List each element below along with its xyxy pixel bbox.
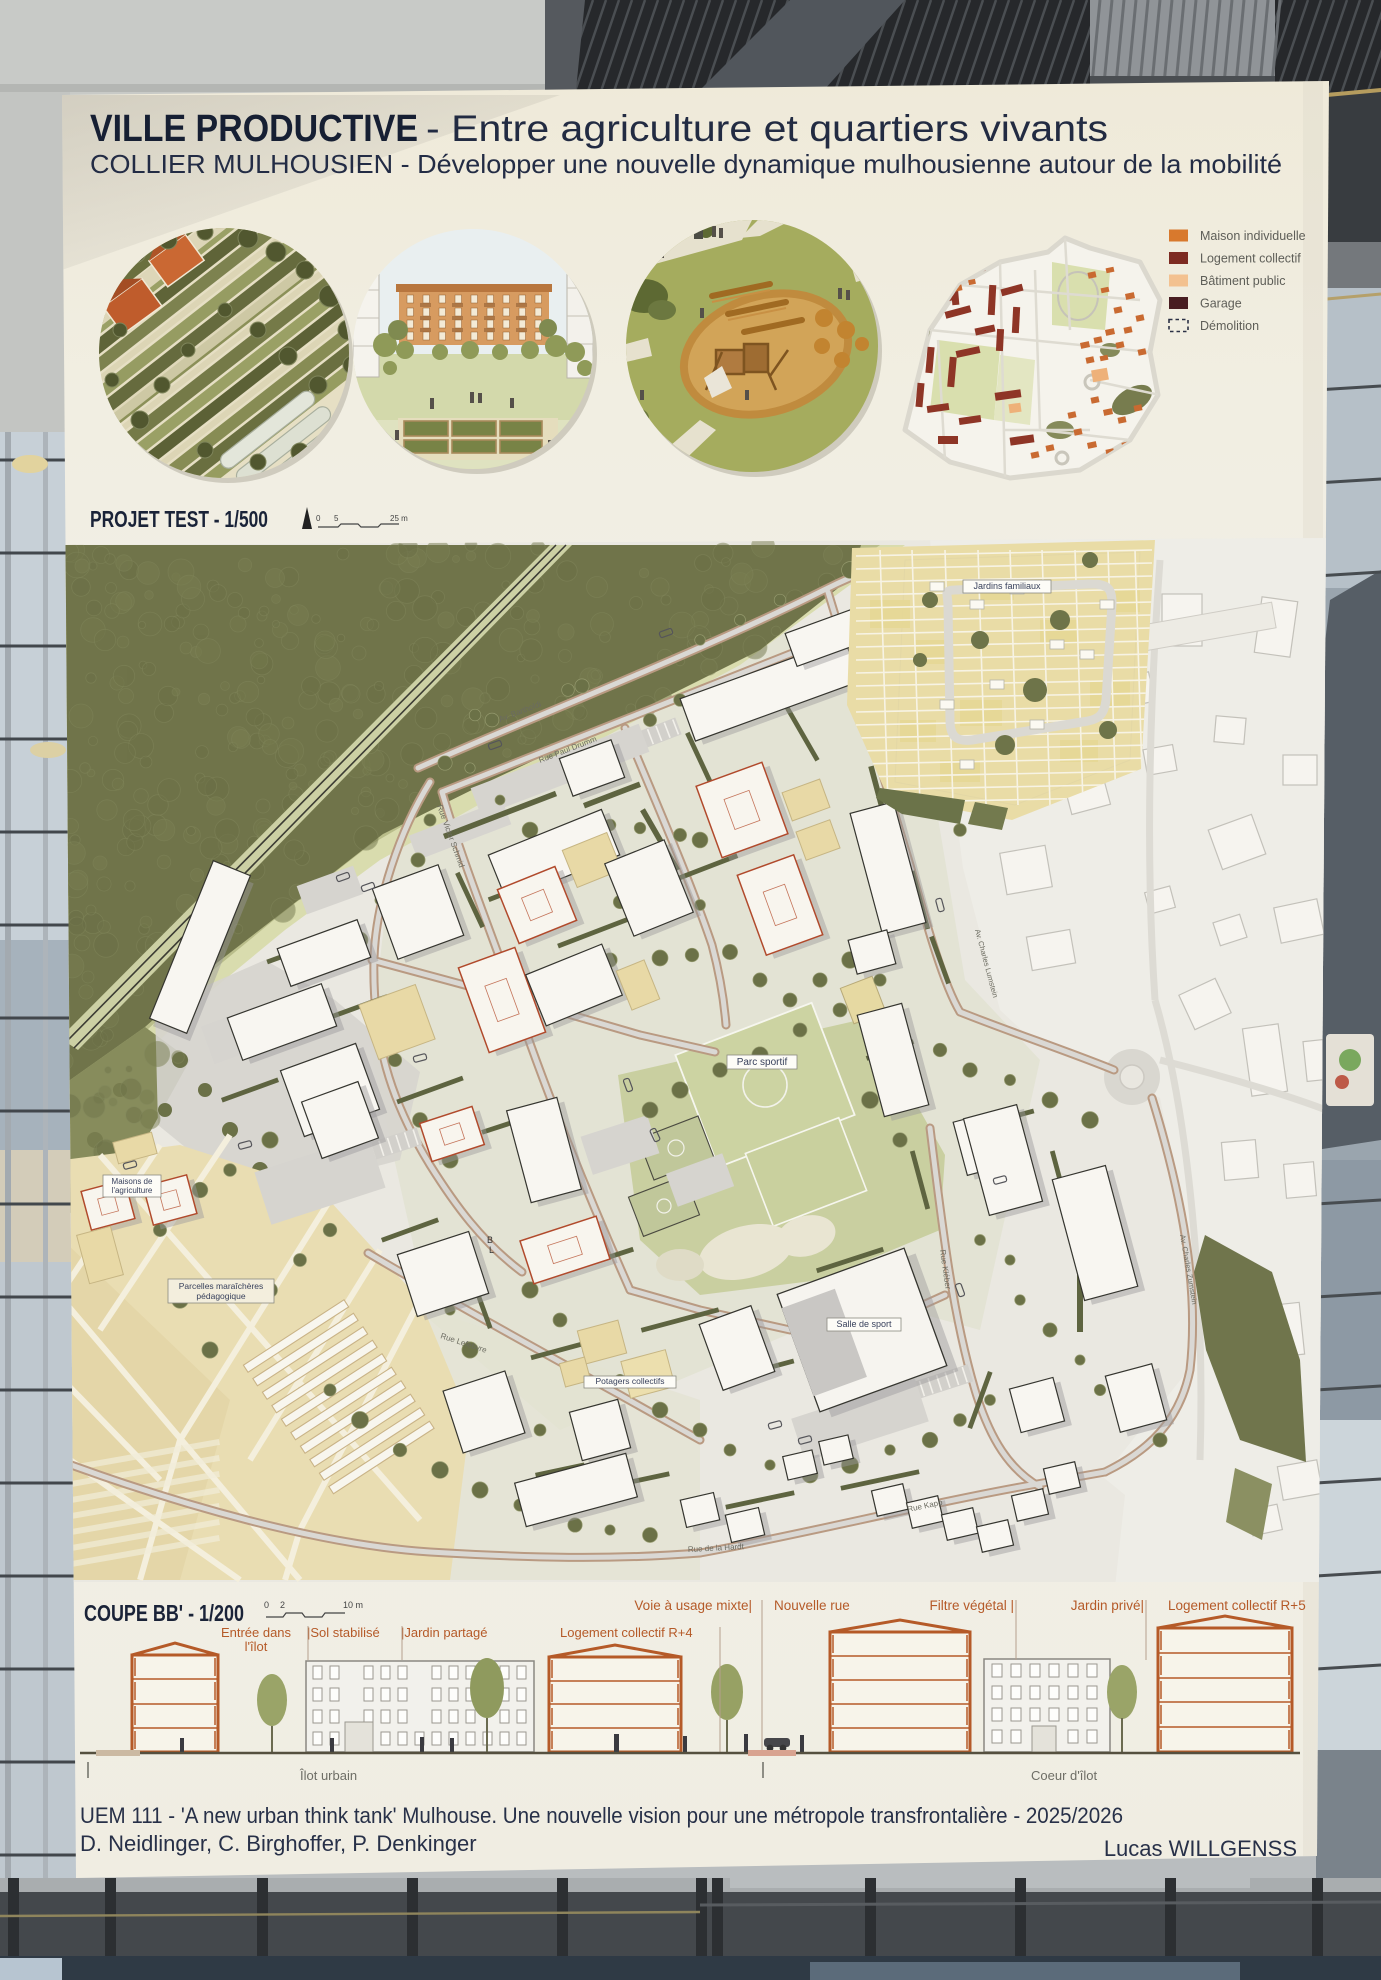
svg-text:D. Neidlinger, C. Birghoffer,: D. Neidlinger, C. Birghoffer, P. Denking…: [80, 1831, 477, 1856]
svg-text:l'îlot: l'îlot: [245, 1639, 268, 1654]
svg-text:Garage: Garage: [1200, 297, 1242, 311]
svg-text:Jardins familiaux: Jardins familiaux: [973, 581, 1041, 591]
svg-text:Parc sportif: Parc sportif: [737, 1057, 788, 1068]
svg-text:Bâtiment public: Bâtiment public: [1200, 274, 1285, 288]
svg-text:COLLIER MULHOUSIEN - Développe: COLLIER MULHOUSIEN - Développer une nouv…: [90, 149, 1282, 179]
svg-text:Jardin privé|: Jardin privé|: [1071, 1598, 1144, 1613]
svg-text:PROJET TEST - 1/500: PROJET TEST - 1/500: [90, 506, 268, 532]
svg-text:Coeur d'îlot: Coeur d'îlot: [1031, 1768, 1097, 1783]
svg-text:Entrée dans: Entrée dans: [221, 1625, 292, 1640]
svg-text:L: L: [489, 1245, 494, 1255]
svg-text:pédagogique: pédagogique: [196, 1291, 245, 1301]
svg-text:UEM 111 - 'A new urban think t: UEM 111 - 'A new urban think tank' Mulho…: [80, 1803, 1123, 1828]
svg-text:5: 5: [334, 514, 339, 523]
svg-text:COUPE BB' - 1/200: COUPE BB' - 1/200: [84, 1600, 244, 1626]
svg-text:VILLE PRODUCTIVE: VILLE PRODUCTIVE: [90, 108, 418, 150]
svg-text:Filtre végétal |: Filtre végétal |: [929, 1598, 1014, 1613]
svg-text:Potagers collectifs: Potagers collectifs: [596, 1376, 665, 1386]
svg-text:Maison individuelle: Maison individuelle: [1200, 229, 1306, 243]
svg-text:l'agriculture: l'agriculture: [112, 1186, 153, 1195]
svg-text:2: 2: [280, 1600, 285, 1610]
svg-text:Salle de sport: Salle de sport: [836, 1319, 892, 1329]
svg-text:0: 0: [264, 1600, 269, 1610]
svg-text:Parcelles maraîchères: Parcelles maraîchères: [179, 1281, 264, 1291]
svg-text:10 m: 10 m: [343, 1600, 363, 1610]
svg-text:|Sol stabilisé: |Sol stabilisé: [307, 1625, 380, 1640]
svg-text:Démolition: Démolition: [1200, 319, 1259, 333]
svg-text:Logement collectif: Logement collectif: [1200, 252, 1301, 266]
svg-text:Îlot urbain: Îlot urbain: [299, 1768, 357, 1783]
svg-text:Nouvelle rue: Nouvelle rue: [774, 1598, 850, 1613]
svg-text:B: B: [487, 1235, 493, 1245]
svg-text:Logement collectif R+4: Logement collectif R+4: [560, 1625, 693, 1640]
svg-text:Logement collectif R+5: Logement collectif R+5: [1168, 1598, 1306, 1613]
svg-text:25 m: 25 m: [390, 514, 408, 523]
svg-text:- Entre agriculture et quartie: - Entre agriculture et quartiers vivants: [426, 108, 1108, 149]
svg-text:Maisons de: Maisons de: [112, 1177, 153, 1186]
svg-text:0: 0: [316, 514, 321, 523]
svg-text:|Jardin partagé: |Jardin partagé: [401, 1625, 488, 1640]
svg-text:Voie à usage mixte|: Voie à usage mixte|: [634, 1598, 752, 1613]
